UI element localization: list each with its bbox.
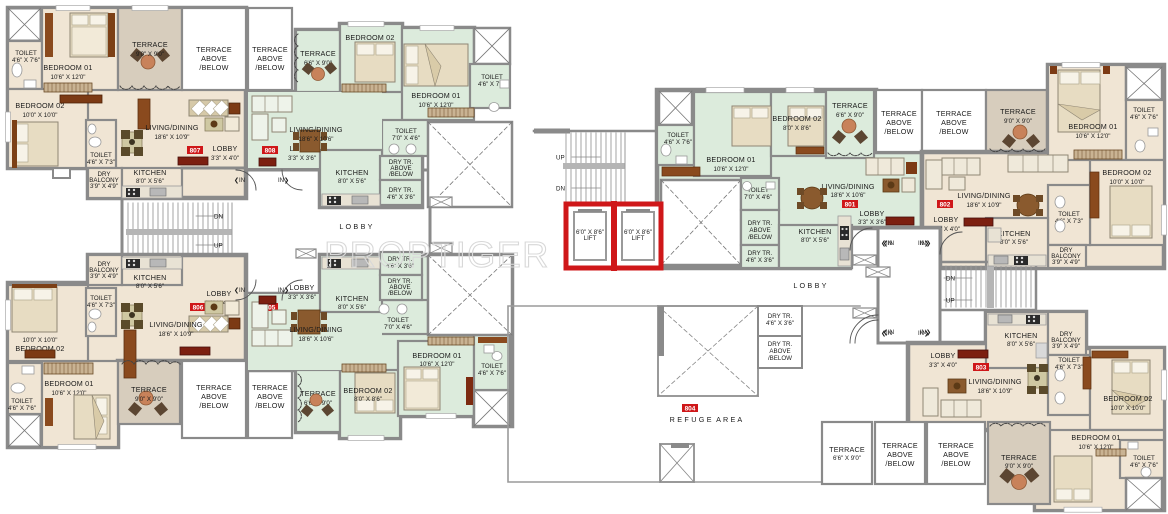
svg-text:LIFT: LIFT: [584, 235, 597, 242]
svg-text:804: 804: [685, 406, 696, 413]
svg-text:10'0" X 10'0": 10'0" X 10'0": [1110, 179, 1145, 186]
svg-text:806: 806: [193, 305, 204, 312]
svg-text:BEDROOM 01: BEDROOM 01: [43, 63, 92, 72]
svg-text:4'6" X 3'6": 4'6" X 3'6": [746, 257, 774, 264]
svg-text:LIVING/DINING: LIVING/DINING: [289, 125, 343, 134]
svg-text:8'0" X 5'6": 8'0" X 5'6": [1000, 239, 1028, 246]
svg-text:TOILET: TOILET: [395, 128, 417, 135]
svg-text:TOILET: TOILET: [667, 132, 689, 139]
svg-text:LIVING/DINING: LIVING/DINING: [968, 377, 1022, 386]
svg-text:BEDROOM 02: BEDROOM 02: [1102, 168, 1151, 177]
svg-text:UP: UP: [214, 243, 223, 250]
svg-text:LOBBY: LOBBY: [213, 144, 238, 153]
svg-text:TERRACE: TERRACE: [131, 385, 167, 394]
svg-text:4'6" X 3'6": 4'6" X 3'6": [387, 194, 415, 201]
svg-text:TOILET: TOILET: [15, 50, 37, 57]
svg-text:KITCHEN: KITCHEN: [134, 168, 167, 177]
svg-text:7'0" X 4'6": 7'0" X 4'6": [384, 324, 412, 331]
svg-text:4'6" X 7'6": 4'6" X 7'6": [8, 405, 36, 412]
svg-text:KITCHEN: KITCHEN: [998, 229, 1031, 238]
svg-text:TERRACE: TERRACE: [881, 109, 917, 118]
svg-text:LOBBY: LOBBY: [290, 283, 315, 292]
svg-text:3'9" X 4'9": 3'9" X 4'9": [90, 183, 118, 190]
svg-text:KITCHEN: KITCHEN: [134, 273, 167, 282]
svg-text:TERRACE: TERRACE: [196, 383, 232, 392]
svg-text:/BELOW: /BELOW: [389, 171, 413, 178]
svg-text:3'9" X 4'9": 3'9" X 4'9": [1052, 259, 1080, 266]
svg-text:BEDROOM 01: BEDROOM 01: [706, 155, 755, 164]
svg-text:BEDROOM 02: BEDROOM 02: [343, 386, 392, 395]
svg-text:9'0" X 9'0": 9'0" X 9'0": [135, 396, 163, 403]
svg-text:BEDROOM 02: BEDROOM 02: [772, 114, 821, 123]
svg-text:ABOVE: ABOVE: [887, 450, 913, 459]
svg-text:4'6" X 3'6": 4'6" X 3'6": [766, 320, 794, 327]
svg-text:DN: DN: [556, 186, 565, 193]
svg-text:TERRACE: TERRACE: [832, 101, 868, 110]
svg-text:TERRACE: TERRACE: [829, 445, 865, 454]
svg-text:8'0" X 8'6": 8'0" X 8'6": [354, 396, 382, 403]
svg-text:ABOVE: ABOVE: [886, 118, 912, 127]
svg-text:10'0" X 10'0": 10'0" X 10'0": [23, 337, 58, 344]
svg-text:18'6" X 10'9": 18'6" X 10'9": [155, 134, 190, 141]
svg-text:3'9" X 4'9": 3'9" X 4'9": [1052, 343, 1080, 350]
svg-text:ABOVE: ABOVE: [257, 392, 283, 401]
svg-text:3'3" X 4'0": 3'3" X 4'0": [929, 362, 957, 369]
svg-text:/BELOW: /BELOW: [255, 401, 284, 410]
svg-text:❮IN: ❮IN: [881, 240, 892, 247]
svg-text:9'0" X 9'0": 9'0" X 9'0": [1005, 463, 1033, 470]
svg-text:TOILET: TOILET: [90, 295, 112, 302]
svg-text:ABOVE: ABOVE: [201, 54, 227, 63]
svg-text:DRY TR.: DRY TR.: [748, 250, 773, 257]
svg-text:808: 808: [265, 148, 276, 155]
svg-text:6'6" X 9'0": 6'6" X 9'0": [836, 112, 864, 119]
svg-text:BEDROOM 01: BEDROOM 01: [412, 351, 461, 360]
svg-text:ABOVE: ABOVE: [257, 54, 283, 63]
svg-text:LOBBY: LOBBY: [207, 289, 232, 298]
svg-text:/BELOW: /BELOW: [748, 234, 772, 241]
svg-text:TOILET: TOILET: [481, 363, 503, 370]
svg-text:TOILET: TOILET: [387, 317, 409, 324]
svg-text:18'6" X 10'6": 18'6" X 10'6": [299, 136, 334, 143]
svg-text:TERRACE: TERRACE: [132, 40, 168, 49]
svg-text:BEDROOM 01: BEDROOM 01: [411, 91, 460, 100]
svg-text:TOILET: TOILET: [1133, 107, 1155, 114]
svg-text:/BELOW: /BELOW: [768, 355, 792, 362]
svg-text:ABOVE: ABOVE: [943, 450, 969, 459]
svg-text:TERRACE: TERRACE: [938, 441, 974, 450]
svg-text:3'3" X 3'6": 3'3" X 3'6": [288, 294, 316, 301]
svg-text:807: 807: [190, 148, 201, 155]
svg-text:10'6" X 12'0": 10'6" X 12'0": [1076, 133, 1111, 140]
svg-text:TOILET: TOILET: [11, 398, 33, 405]
svg-text:IN❯: IN❯: [278, 177, 289, 184]
svg-text:4'6" X 7'6": 4'6" X 7'6": [478, 370, 506, 377]
svg-text:802: 802: [940, 202, 951, 209]
svg-text:6'6" X 9'0": 6'6" X 9'0": [833, 455, 861, 462]
svg-text:DRY TR.: DRY TR.: [389, 187, 414, 194]
svg-text:TOILET: TOILET: [1133, 455, 1155, 462]
svg-text:TERRACE: TERRACE: [196, 45, 232, 54]
svg-text:❮IN: ❮IN: [234, 287, 245, 294]
svg-text:4'6" X 7'6": 4'6" X 7'6": [1130, 114, 1158, 121]
svg-text:KITCHEN: KITCHEN: [799, 227, 832, 236]
svg-text:LIVING/DINING: LIVING/DINING: [957, 191, 1011, 200]
svg-text:❮IN: ❮IN: [234, 177, 245, 184]
svg-text:8'0" X 5'6": 8'0" X 5'6": [1007, 341, 1035, 348]
svg-text:8'0" X 5'6": 8'0" X 5'6": [136, 283, 164, 290]
svg-text:ABOVE: ABOVE: [769, 348, 790, 355]
svg-text:KITCHEN: KITCHEN: [336, 168, 369, 177]
svg-text:UP: UP: [556, 155, 565, 162]
svg-text:DN: DN: [214, 214, 223, 221]
svg-text:801: 801: [845, 202, 856, 209]
svg-text:DRY TR.: DRY TR.: [748, 220, 773, 227]
svg-text:3'3" X 3'6": 3'3" X 3'6": [288, 155, 316, 162]
svg-text:9'0" X 9'0": 9'0" X 9'0": [1004, 118, 1032, 125]
svg-text:TERRACE: TERRACE: [252, 383, 288, 392]
svg-text:10'6" X 12'0": 10'6" X 12'0": [1079, 444, 1114, 451]
svg-text:TERRACE: TERRACE: [300, 49, 336, 58]
svg-text:R E F U G E A R E A: R E F U G E A R E A: [670, 415, 743, 424]
svg-text:8'0" X 5'6": 8'0" X 5'6": [338, 178, 366, 185]
svg-text:18'6" X 10'9": 18'6" X 10'9": [159, 331, 194, 338]
svg-text:/BELOW: /BELOW: [885, 459, 914, 468]
svg-text:8'0" X 5'6": 8'0" X 5'6": [801, 237, 829, 244]
svg-text:BEDROOM 01: BEDROOM 01: [44, 379, 93, 388]
svg-text:LIFT: LIFT: [632, 235, 645, 242]
svg-text:10'6" X 12'0": 10'6" X 12'0": [714, 166, 749, 173]
svg-text:LIVING/DINING: LIVING/DINING: [145, 123, 199, 132]
svg-text:BEDROOM 01: BEDROOM 01: [1071, 433, 1120, 442]
svg-text:DN: DN: [946, 276, 955, 283]
svg-text:/BELOW: /BELOW: [199, 63, 228, 72]
svg-text:/BELOW: /BELOW: [388, 290, 412, 297]
svg-text:TERRACE: TERRACE: [882, 441, 918, 450]
svg-text:TOILET: TOILET: [1058, 357, 1080, 364]
svg-text:LOBBY: LOBBY: [931, 351, 956, 360]
svg-text:/BELOW: /BELOW: [199, 401, 228, 410]
svg-text:/BELOW: /BELOW: [255, 63, 284, 72]
svg-text:8'0" X 5'6": 8'0" X 5'6": [338, 304, 366, 311]
svg-text:TOILET: TOILET: [1058, 211, 1080, 218]
svg-text:7'0" X 4'6": 7'0" X 4'6": [392, 135, 420, 142]
svg-text:18'6" X 10'9": 18'6" X 10'9": [967, 202, 1002, 209]
svg-text:LIVING/DINING: LIVING/DINING: [289, 325, 343, 334]
svg-text:IN❯: IN❯: [918, 330, 929, 337]
svg-text:/BELOW: /BELOW: [939, 127, 968, 136]
svg-text:PROPTIGER: PROPTIGER: [324, 234, 550, 275]
svg-text:TERRACE: TERRACE: [1001, 453, 1037, 462]
svg-text:TERRACE: TERRACE: [252, 45, 288, 54]
svg-text:BEDROOM 02: BEDROOM 02: [1103, 394, 1152, 403]
svg-text:10'6" X 12'0": 10'6" X 12'0": [51, 74, 86, 81]
svg-text:18'6" X 10'6": 18'6" X 10'6": [831, 192, 866, 199]
svg-text:UP: UP: [946, 298, 955, 305]
svg-text:LOBBY: LOBBY: [934, 215, 959, 224]
svg-text:LIVING/DINING: LIVING/DINING: [149, 320, 203, 329]
svg-text:3'3" X 3'6": 3'3" X 3'6": [858, 219, 886, 226]
svg-text:IN❯: IN❯: [278, 287, 289, 294]
svg-text:8'0" X 5'6": 8'0" X 5'6": [136, 178, 164, 185]
svg-text:KITCHEN: KITCHEN: [1005, 331, 1038, 340]
svg-text:ABOVE: ABOVE: [941, 118, 967, 127]
svg-text:ABOVE: ABOVE: [749, 227, 770, 234]
svg-text:L O B B Y: L O B B Y: [339, 222, 372, 231]
svg-text:KITCHEN: KITCHEN: [336, 294, 369, 303]
svg-text:7'0" X 4'6": 7'0" X 4'6": [744, 194, 772, 201]
svg-text:LOBBY: LOBBY: [860, 209, 885, 218]
svg-text:10'0" X 10'0": 10'0" X 10'0": [1111, 405, 1146, 412]
svg-text:TERRACE: TERRACE: [1000, 107, 1036, 116]
svg-text:TERRACE: TERRACE: [936, 109, 972, 118]
svg-text:TOILET: TOILET: [90, 152, 112, 159]
svg-text:/BELOW: /BELOW: [941, 459, 970, 468]
svg-text:3'9" X 4'9": 3'9" X 4'9": [90, 273, 118, 280]
svg-text:8'0" X 8'6": 8'0" X 8'6": [783, 125, 811, 132]
svg-text:BEDROOM 02: BEDROOM 02: [345, 33, 394, 42]
svg-text:4'6" X 7'3": 4'6" X 7'3": [87, 302, 115, 309]
svg-text:4'6" X 7'3": 4'6" X 7'3": [87, 159, 115, 166]
svg-text:DRY TR.: DRY TR.: [768, 341, 793, 348]
svg-text:L O B B Y: L O B B Y: [793, 281, 826, 290]
svg-text:BEDROOM 01: BEDROOM 01: [1068, 122, 1117, 131]
svg-text:10'0" X 10'0": 10'0" X 10'0": [23, 112, 58, 119]
svg-text:18'6" X 10'9": 18'6" X 10'9": [978, 388, 1013, 395]
svg-text:LIVING/DINING: LIVING/DINING: [821, 182, 875, 191]
svg-text:9'0" X 9'0": 9'0" X 9'0": [136, 51, 164, 58]
svg-text:803: 803: [976, 365, 987, 372]
svg-text:❮IN: ❮IN: [881, 330, 892, 337]
svg-text:/BELOW: /BELOW: [884, 127, 913, 136]
svg-text:18'6" X 10'6": 18'6" X 10'6": [299, 336, 334, 343]
svg-text:IN❯: IN❯: [918, 240, 929, 247]
svg-text:BEDROOM 02: BEDROOM 02: [15, 101, 64, 110]
svg-text:ABOVE: ABOVE: [201, 392, 227, 401]
svg-text:DRY TR.: DRY TR.: [768, 313, 793, 320]
svg-text:3'3" X 4'0": 3'3" X 4'0": [211, 155, 239, 162]
